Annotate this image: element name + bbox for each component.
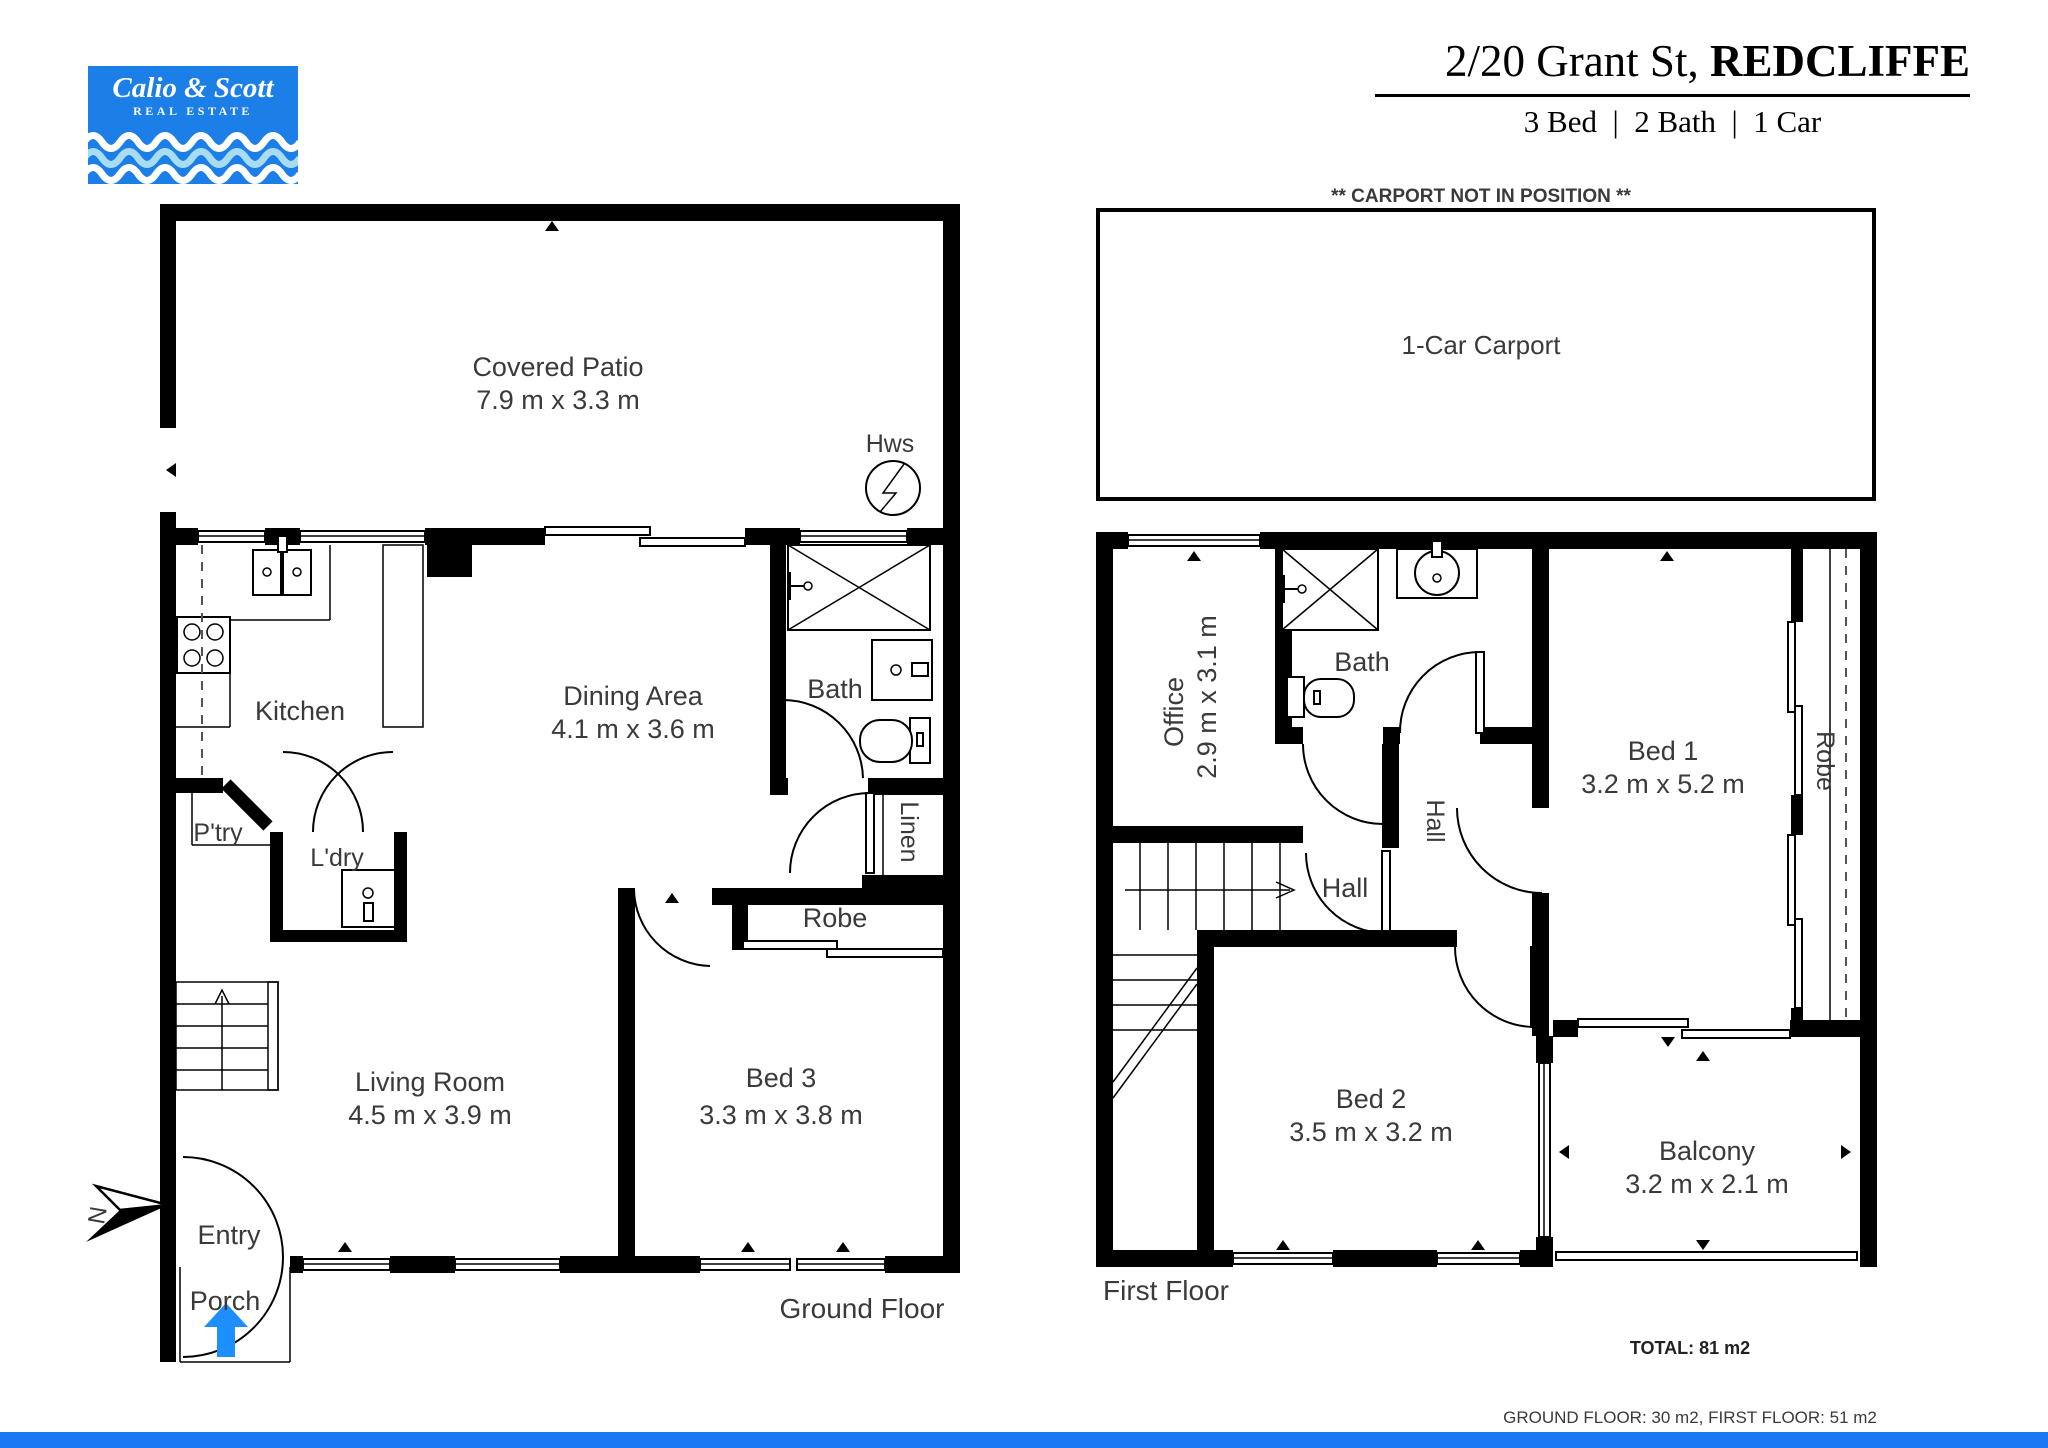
- stove: [177, 617, 230, 673]
- label-robe-first: Robe: [1811, 731, 1839, 791]
- window: [1437, 1253, 1520, 1264]
- north-arrow-icon: N: [82, 1186, 168, 1242]
- bath1f-door-arc: [1400, 652, 1480, 733]
- linen-door-arc: [790, 793, 870, 873]
- ground-floor-plan: N Covered Patio 7.9 m x 3.3 m Hws Kitche…: [82, 204, 960, 1362]
- bath-door-arc: [783, 700, 863, 778]
- window: [1128, 535, 1260, 546]
- bed2-door-arc: [1455, 947, 1535, 1027]
- hot-water-system-icon: [866, 461, 920, 515]
- balcony-sliding-door: [1578, 1019, 1790, 1038]
- window: [455, 1259, 560, 1270]
- room-label-bed2: Bed 2: [1336, 1084, 1407, 1114]
- floor-title-ground: Ground Floor: [780, 1293, 945, 1324]
- room-label-entry: Entry: [197, 1220, 261, 1250]
- label-hall-lower: Hall: [1322, 873, 1369, 903]
- window: [797, 1259, 885, 1270]
- room-dims-living: 4.5 m x 3.9 m: [348, 1100, 512, 1130]
- window: [1233, 1253, 1333, 1264]
- window: [300, 531, 425, 542]
- shower: [788, 545, 930, 630]
- room-dims-bed2: 3.5 m x 3.2 m: [1289, 1117, 1453, 1147]
- room-label-bed3: Bed 3: [746, 1063, 817, 1093]
- room-label-porch: Porch: [190, 1286, 261, 1316]
- shower-first: [1282, 549, 1378, 630]
- window: [800, 531, 907, 542]
- label-laundry: L'dry: [310, 844, 364, 872]
- first-floor-plan: Office 2.9 m x 3.1 m Bath Hall Hall Bed …: [1096, 532, 1877, 1306]
- label-linen: Linen: [895, 801, 923, 862]
- room-dims-patio: 7.9 m x 3.3 m: [476, 385, 640, 415]
- floor-title-first: First Floor: [1103, 1275, 1229, 1306]
- label-pantry: P'try: [193, 819, 243, 847]
- room-dims-bed1: 3.2 m x 5.2 m: [1581, 769, 1745, 799]
- room-label-patio: Covered Patio: [472, 352, 643, 382]
- room-label-bath-first: Bath: [1334, 647, 1390, 677]
- room-dims-bed3: 3.3 m x 3.8 m: [699, 1100, 863, 1130]
- room-label-bath-ground: Bath: [807, 674, 863, 704]
- window: [198, 531, 265, 542]
- label-hws: Hws: [866, 430, 915, 458]
- sliding-door: [545, 527, 745, 546]
- room-label-living: Living Room: [355, 1067, 505, 1097]
- vanity-basin-first: [1397, 541, 1477, 598]
- label-hall-upper: Hall: [1421, 799, 1449, 842]
- window: [303, 1259, 390, 1270]
- room-label-office: Office: [1159, 677, 1189, 747]
- laundry-tub: [342, 870, 395, 927]
- bath1f-door-leaf: [1476, 652, 1484, 733]
- balcony-balustrade: [1556, 1252, 1857, 1260]
- kitchen-sink: [253, 536, 311, 595]
- north-label: N: [82, 1204, 112, 1226]
- room-label-dining: Dining Area: [563, 681, 704, 711]
- robe-sliding-doors: [743, 941, 943, 957]
- carport-label: 1-Car Carport: [1402, 330, 1562, 360]
- label-robe-ground: Robe: [803, 903, 868, 933]
- vanity-basin: [872, 640, 932, 700]
- room-label-bed1: Bed 1: [1628, 736, 1699, 766]
- toilet: [860, 718, 930, 763]
- toilet-first: [1287, 677, 1354, 717]
- room-dims-office: 2.9 m x 3.1 m: [1192, 615, 1222, 779]
- floor-plans: N Covered Patio 7.9 m x 3.3 m Hws Kitche…: [0, 0, 2048, 1448]
- room-label-kitchen: Kitchen: [255, 696, 345, 726]
- linen-door-leaf: [866, 793, 874, 873]
- stairs-ground: [176, 982, 278, 1090]
- area-total: TOTAL: 81 m2: [1360, 1337, 2020, 1360]
- carport-note: ** CARPORT NOT IN POSITION **: [1331, 186, 1631, 207]
- floorplan-page: Calio & Scott REAL ESTATE 2/20 Grant St,…: [0, 0, 2048, 1448]
- carport: ** CARPORT NOT IN POSITION ** 1-Car Carp…: [1098, 186, 1874, 499]
- footer-accent-bar: [0, 1432, 2048, 1448]
- room-dims-balcony: 3.2 m x 2.1 m: [1625, 1169, 1789, 1199]
- window: [700, 1259, 790, 1270]
- bed1-door-arc: [1457, 808, 1542, 893]
- room-dims-dining: 4.1 m x 3.6 m: [551, 714, 715, 744]
- hall-door-leaf: [1382, 851, 1390, 939]
- office-door-arc: [1303, 744, 1383, 824]
- window: [1539, 1063, 1550, 1237]
- room-label-balcony: Balcony: [1659, 1136, 1756, 1166]
